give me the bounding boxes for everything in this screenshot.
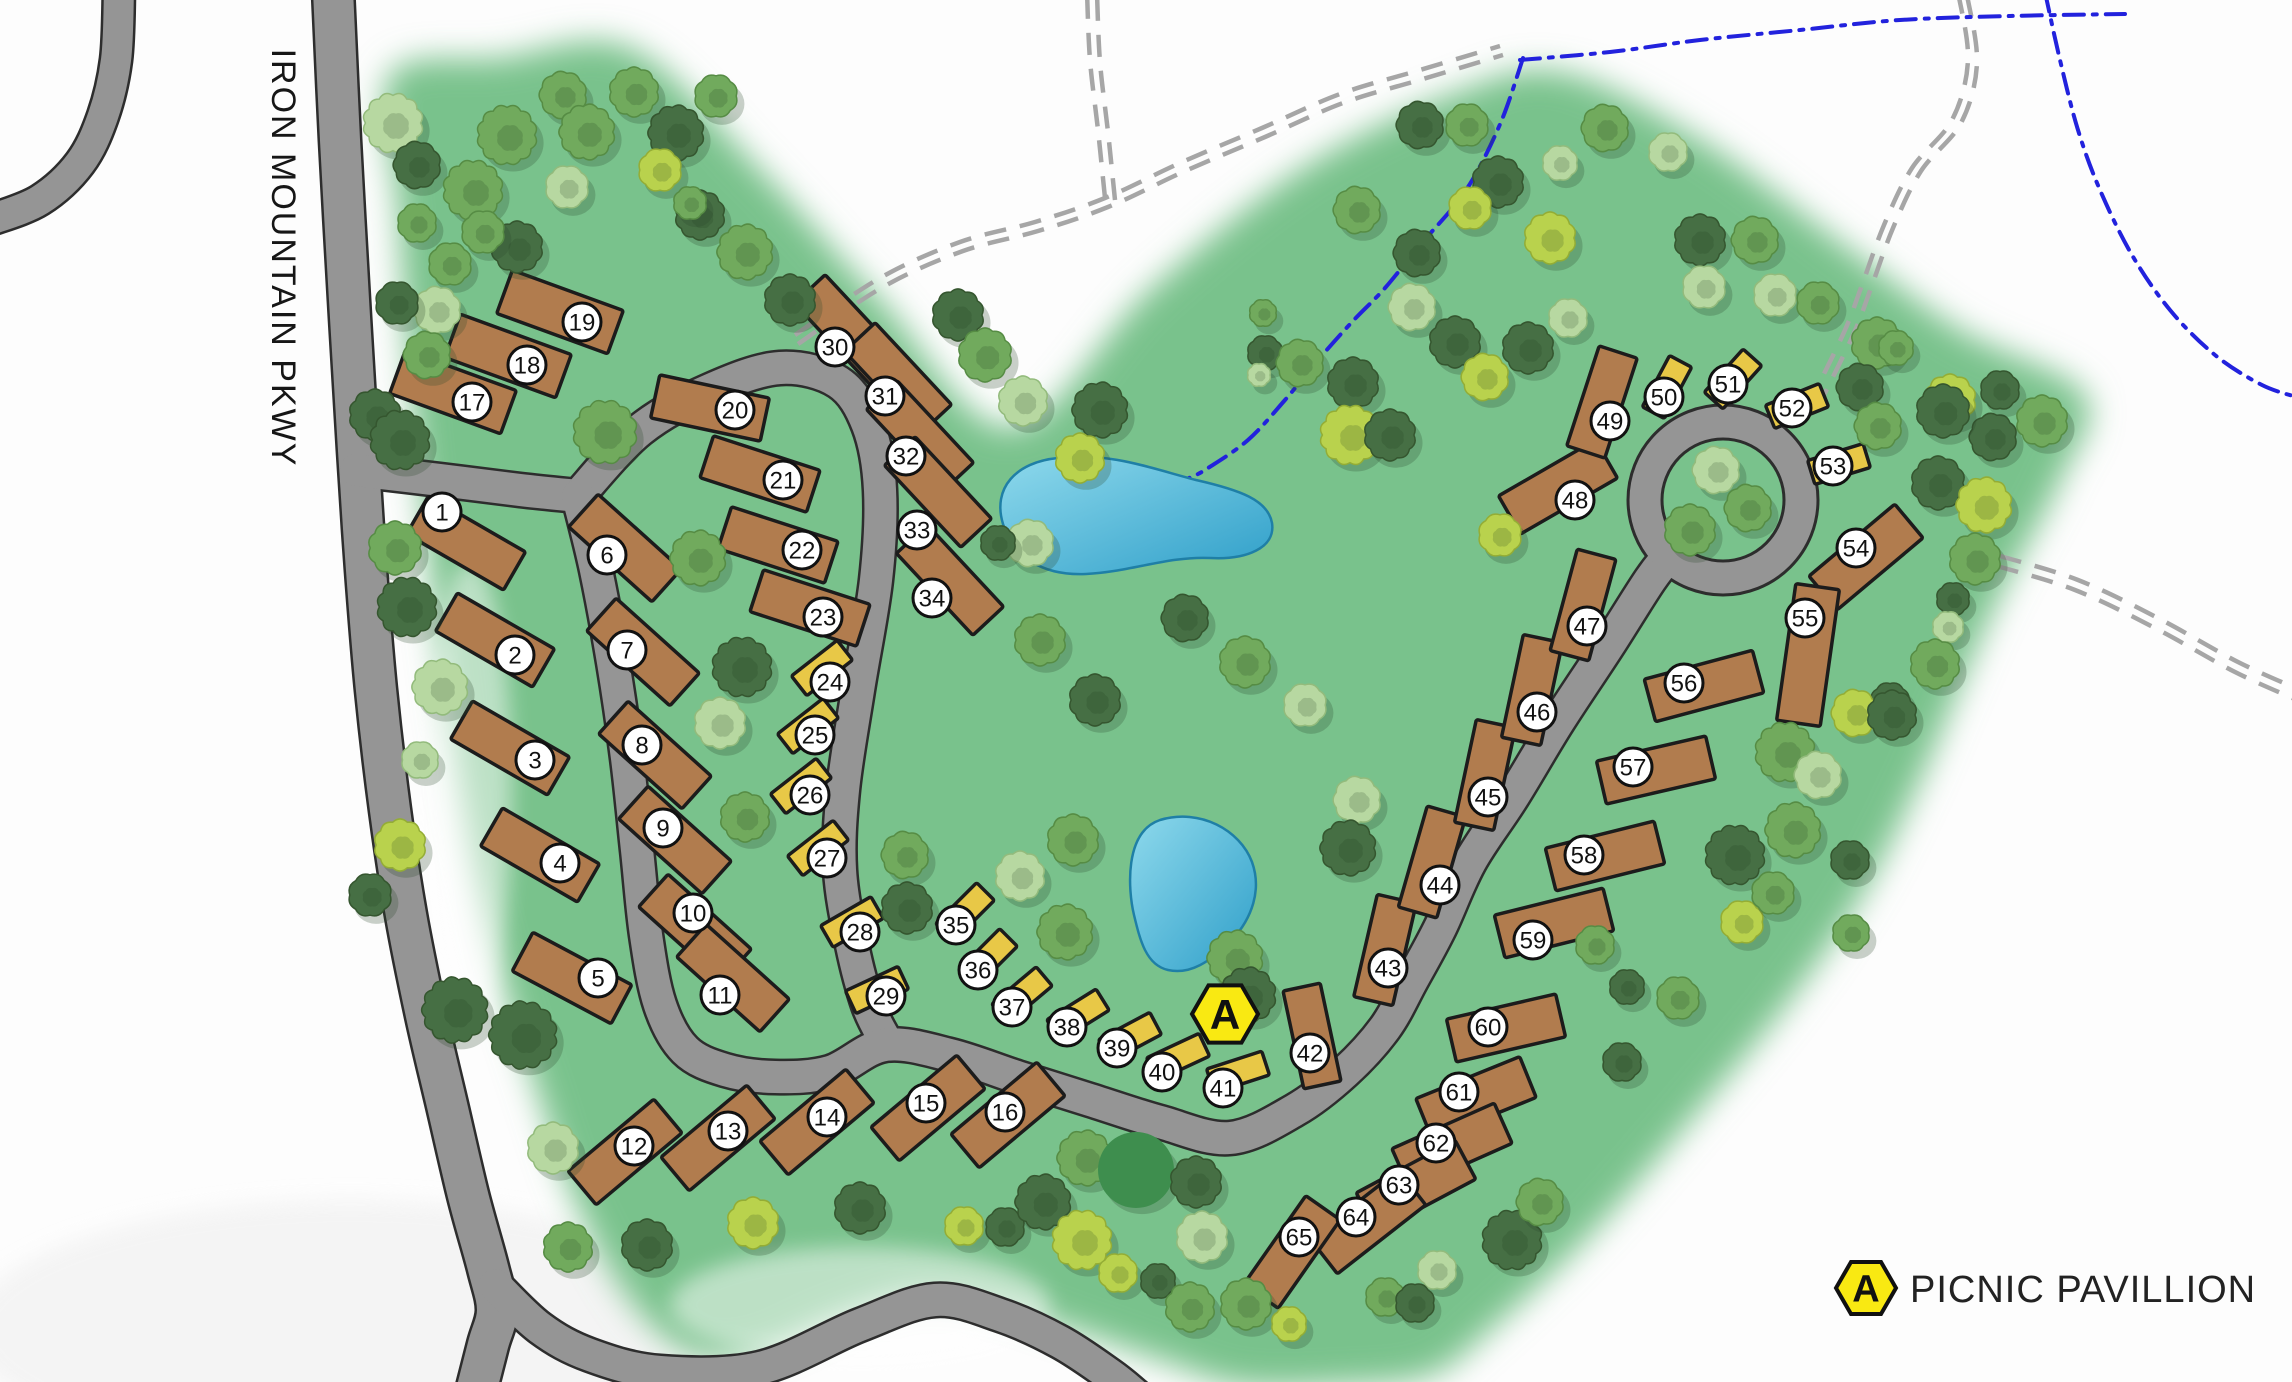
lot-number-badge: 56 — [1665, 664, 1703, 702]
lot-number-badge: 19 — [563, 303, 601, 341]
svg-text:60: 60 — [1475, 1015, 1502, 1042]
svg-text:50: 50 — [1651, 385, 1678, 412]
svg-text:32: 32 — [893, 444, 920, 471]
lot-number-badge: 7 — [608, 631, 646, 669]
lot-number-badge: 15 — [907, 1084, 945, 1122]
lot-number-badge: 1 — [423, 493, 461, 531]
lot-number-badge: 45 — [1469, 778, 1507, 816]
svg-text:33: 33 — [904, 518, 931, 545]
svg-text:22: 22 — [789, 538, 816, 565]
svg-text:1: 1 — [435, 500, 448, 527]
svg-text:10: 10 — [680, 901, 707, 928]
lot-number-badge: 33 — [898, 511, 936, 549]
svg-text:63: 63 — [1386, 1173, 1413, 1200]
lot-number-badge: 40 — [1143, 1053, 1181, 1091]
svg-text:45: 45 — [1475, 785, 1502, 812]
svg-text:23: 23 — [810, 605, 837, 632]
lot-number-badge: 52 — [1773, 389, 1811, 427]
svg-text:17: 17 — [459, 390, 486, 417]
svg-text:36: 36 — [965, 958, 992, 985]
svg-text:55: 55 — [1792, 606, 1819, 633]
road-name-label: IRON MOUNTAIN PKWY — [264, 49, 302, 468]
svg-text:12: 12 — [621, 1134, 648, 1161]
svg-text:3: 3 — [528, 748, 541, 775]
lot-number-badge: 38 — [1048, 1008, 1086, 1046]
lot-number-badge: 29 — [867, 977, 905, 1015]
svg-text:51: 51 — [1715, 372, 1742, 399]
svg-text:59: 59 — [1520, 928, 1547, 955]
lot-number-badge: 22 — [783, 531, 821, 569]
svg-text:14: 14 — [814, 1105, 841, 1132]
lot-number-badge: 63 — [1380, 1166, 1418, 1204]
svg-text:27: 27 — [814, 846, 841, 873]
svg-text:24: 24 — [817, 670, 844, 697]
svg-text:58: 58 — [1571, 843, 1598, 870]
lot-number-badge: 6 — [588, 536, 626, 574]
lot-number-badge: 20 — [716, 391, 754, 429]
svg-text:28: 28 — [847, 920, 874, 947]
lot-number-badge: 21 — [764, 461, 802, 499]
svg-text:13: 13 — [715, 1119, 742, 1146]
lot-number-badge: 10 — [674, 894, 712, 932]
lot-number-badge: 62 — [1417, 1124, 1455, 1162]
lot-number-badge: 23 — [804, 598, 842, 636]
lot-number-badge: 26 — [791, 776, 829, 814]
svg-text:38: 38 — [1054, 1015, 1081, 1042]
svg-text:62: 62 — [1423, 1131, 1450, 1158]
lot-number-badge: 53 — [1814, 447, 1852, 485]
svg-text:2: 2 — [508, 643, 521, 670]
legend-label: PICNIC PAVILLION — [1910, 1269, 2256, 1311]
svg-text:15: 15 — [913, 1091, 940, 1118]
svg-text:34: 34 — [919, 586, 946, 613]
lot-number-badge: 64 — [1337, 1198, 1375, 1236]
svg-text:6: 6 — [600, 543, 613, 570]
svg-text:54: 54 — [1843, 536, 1870, 563]
lot-number-badge: 2 — [496, 636, 534, 674]
picnic-pavillion-marker[interactable]: A — [1192, 985, 1258, 1042]
lot-number-badge: 35 — [937, 906, 975, 944]
lot-number-badge: 37 — [993, 988, 1031, 1026]
svg-text:64: 64 — [1343, 1205, 1370, 1232]
lot-number-badge: 50 — [1645, 378, 1683, 416]
svg-text:56: 56 — [1671, 671, 1698, 698]
lot-number-badge: 43 — [1369, 949, 1407, 987]
site-map: 1234567891011121314151617181920212223242… — [0, 0, 2292, 1382]
lot-number-badge: 4 — [541, 844, 579, 882]
svg-text:19: 19 — [569, 310, 596, 337]
lot-number-badge: 36 — [959, 951, 997, 989]
lot-number-badge: 42 — [1291, 1034, 1329, 1072]
lot-number-badge: 55 — [1786, 599, 1824, 637]
lot-number-badge: 3 — [516, 741, 554, 779]
lot-number-badge: 25 — [796, 716, 834, 754]
lot-number-badge: 5 — [579, 959, 617, 997]
svg-text:A: A — [1852, 1269, 1879, 1311]
lot-number-badge: 16 — [986, 1093, 1024, 1131]
svg-text:53: 53 — [1820, 454, 1847, 481]
svg-text:47: 47 — [1574, 614, 1601, 641]
lot-number-badge: 49 — [1591, 402, 1629, 440]
site-map-canvas: 1234567891011121314151617181920212223242… — [0, 0, 2292, 1382]
svg-text:18: 18 — [514, 353, 541, 380]
svg-text:40: 40 — [1149, 1060, 1176, 1087]
svg-text:16: 16 — [992, 1100, 1019, 1127]
svg-text:49: 49 — [1597, 409, 1624, 436]
lot-number-badge: 39 — [1098, 1029, 1136, 1067]
svg-text:61: 61 — [1446, 1080, 1473, 1107]
lot-number-badge: 31 — [866, 377, 904, 415]
svg-text:41: 41 — [1210, 1076, 1237, 1103]
lot-number-badge: 13 — [709, 1112, 747, 1150]
lot-number-badge: 11 — [701, 976, 739, 1014]
lot-number-badge: 34 — [913, 579, 951, 617]
lot-number-badge: 18 — [508, 346, 546, 384]
lot-number-badge: 59 — [1514, 921, 1552, 959]
lot-number-badge: 51 — [1709, 365, 1747, 403]
svg-text:39: 39 — [1104, 1036, 1131, 1063]
tree — [1098, 1132, 1174, 1208]
legend-marker-icon: A — [1836, 1262, 1896, 1314]
svg-text:48: 48 — [1562, 488, 1589, 515]
svg-text:65: 65 — [1286, 1225, 1313, 1252]
svg-text:52: 52 — [1779, 396, 1806, 423]
pavillion-marker-letter: A — [1210, 991, 1240, 1038]
svg-text:8: 8 — [635, 733, 648, 760]
lot-number-badge: 41 — [1204, 1069, 1242, 1107]
lot-number-badge: 57 — [1614, 748, 1652, 786]
lot-number-badge: 24 — [811, 663, 849, 701]
lot-number-badge: 27 — [808, 839, 846, 877]
lot-number-badge: 28 — [841, 913, 879, 951]
lot-number-badge: 48 — [1556, 481, 1594, 519]
svg-text:29: 29 — [873, 984, 900, 1011]
svg-text:20: 20 — [722, 398, 749, 425]
svg-text:21: 21 — [770, 468, 797, 495]
svg-text:46: 46 — [1524, 700, 1551, 727]
lot-number-badge: 58 — [1565, 836, 1603, 874]
svg-text:35: 35 — [943, 913, 970, 940]
svg-text:9: 9 — [656, 816, 669, 843]
svg-text:43: 43 — [1375, 956, 1402, 983]
svg-text:11: 11 — [708, 983, 733, 1010]
lot-number-badge: 9 — [644, 809, 682, 847]
lot-number-badge: 12 — [615, 1127, 653, 1165]
lot-number-badge: 65 — [1280, 1218, 1318, 1256]
lot-number-badge: 8 — [623, 726, 661, 764]
svg-text:37: 37 — [999, 995, 1026, 1022]
svg-text:5: 5 — [591, 966, 604, 993]
lot-number-badge: 54 — [1837, 529, 1875, 567]
svg-text:44: 44 — [1427, 873, 1454, 900]
svg-text:25: 25 — [802, 723, 829, 750]
svg-text:57: 57 — [1620, 755, 1647, 782]
svg-text:4: 4 — [553, 851, 566, 878]
svg-text:42: 42 — [1297, 1041, 1324, 1068]
svg-text:26: 26 — [797, 783, 824, 810]
lot-number-badge: 47 — [1568, 607, 1606, 645]
lot-number-badge: 30 — [816, 328, 854, 366]
lot-number-badge: 61 — [1440, 1073, 1478, 1111]
lot-number-badge: 14 — [808, 1098, 846, 1136]
lot-number-badge: 60 — [1469, 1008, 1507, 1046]
lot-number-badge: 32 — [887, 437, 925, 475]
lot-number-badge: 17 — [453, 383, 491, 421]
svg-text:30: 30 — [822, 335, 849, 362]
lot-number-badge: 44 — [1421, 866, 1459, 904]
svg-text:7: 7 — [620, 638, 633, 665]
lot-number-badge: 46 — [1518, 693, 1556, 731]
svg-text:31: 31 — [872, 384, 899, 411]
